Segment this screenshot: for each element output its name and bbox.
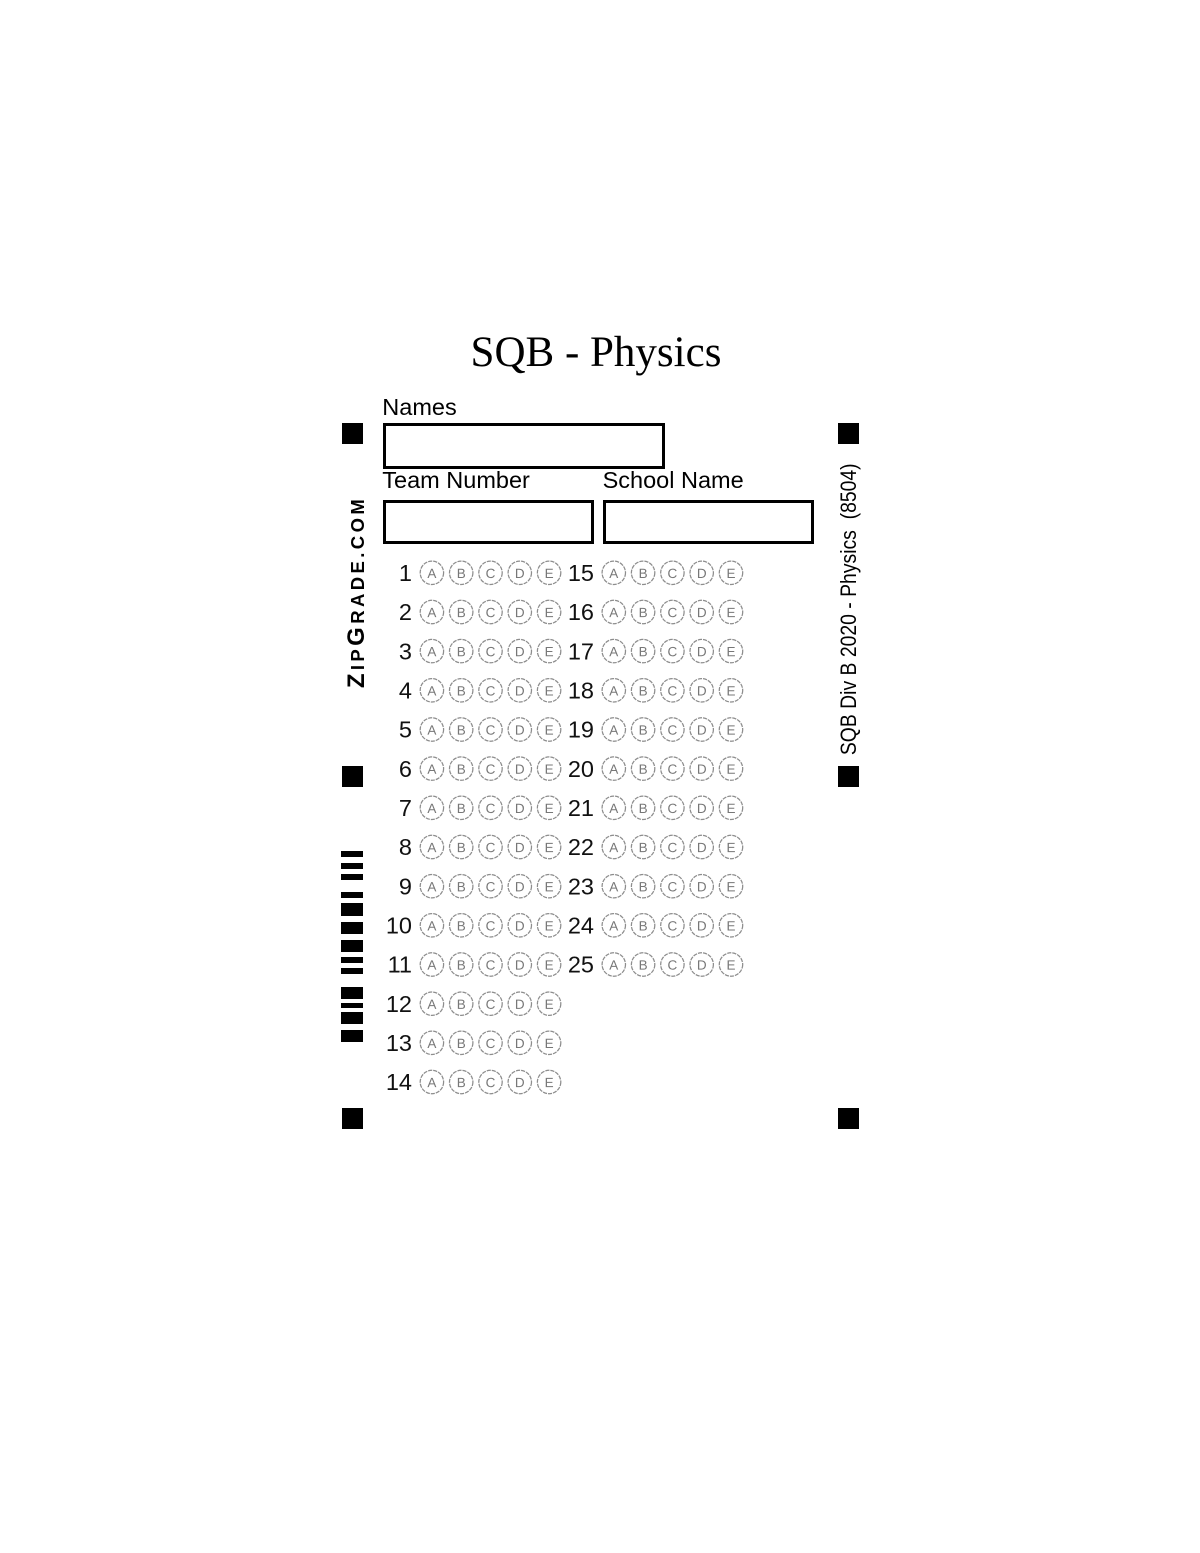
svg-text:B: B [457, 1036, 466, 1051]
svg-text:C: C [486, 762, 496, 777]
svg-text:C: C [668, 801, 678, 816]
svg-text:D: D [697, 723, 707, 738]
svg-text:C: C [486, 918, 496, 933]
svg-text:19: 19 [568, 717, 594, 743]
svg-text:A: A [609, 918, 618, 933]
svg-text:D: D [697, 879, 707, 894]
svg-text:C: C [668, 683, 678, 698]
svg-text:E: E [545, 644, 554, 659]
svg-text:14: 14 [386, 1069, 412, 1095]
svg-text:C: C [668, 762, 678, 777]
svg-text:B: B [639, 879, 648, 894]
svg-text:E: E [545, 958, 554, 973]
svg-text:D: D [515, 723, 525, 738]
svg-text:B: B [457, 879, 466, 894]
svg-text:17: 17 [568, 638, 594, 664]
svg-text:D: D [515, 840, 525, 855]
svg-text:E: E [545, 997, 554, 1012]
svg-text:E: E [726, 683, 735, 698]
svg-text:B: B [639, 958, 648, 973]
svg-text:A: A [427, 762, 436, 777]
svg-text:E: E [726, 566, 735, 581]
svg-text:C: C [486, 1075, 496, 1090]
svg-text:6: 6 [399, 756, 412, 782]
svg-text:2: 2 [399, 599, 412, 625]
svg-text:A: A [609, 879, 618, 894]
svg-text:B: B [457, 644, 466, 659]
svg-text:E: E [726, 605, 735, 620]
svg-text:8: 8 [399, 834, 412, 860]
svg-text:11: 11 [388, 952, 412, 978]
svg-text:B: B [639, 918, 648, 933]
svg-text:B: B [457, 723, 466, 738]
svg-text:10: 10 [386, 913, 412, 939]
svg-text:D: D [697, 958, 707, 973]
svg-text:E: E [545, 840, 554, 855]
svg-text:B: B [457, 801, 466, 816]
svg-text:E: E [545, 801, 554, 816]
svg-text:4: 4 [399, 678, 412, 704]
svg-text:E: E [726, 762, 735, 777]
svg-text:E: E [726, 918, 735, 933]
svg-text:20: 20 [568, 756, 594, 782]
svg-text:D: D [515, 644, 525, 659]
svg-text:D: D [515, 605, 525, 620]
svg-text:E: E [545, 1075, 554, 1090]
svg-text:D: D [515, 879, 525, 894]
svg-text:A: A [427, 644, 436, 659]
svg-text:A: A [427, 1036, 436, 1051]
svg-text:C: C [486, 879, 496, 894]
svg-text:C: C [668, 605, 678, 620]
svg-text:E: E [545, 723, 554, 738]
svg-text:A: A [427, 605, 436, 620]
svg-text:D: D [697, 840, 707, 855]
svg-text:D: D [515, 801, 525, 816]
svg-text:E: E [726, 801, 735, 816]
svg-text:D: D [697, 762, 707, 777]
svg-text:B: B [457, 1075, 466, 1090]
svg-text:D: D [697, 566, 707, 581]
svg-text:E: E [545, 1036, 554, 1051]
svg-text:C: C [486, 723, 496, 738]
svg-text:D: D [515, 566, 525, 581]
svg-text:D: D [515, 683, 525, 698]
svg-text:A: A [427, 997, 436, 1012]
svg-text:A: A [609, 683, 618, 698]
svg-text:B: B [639, 801, 648, 816]
svg-text:D: D [697, 683, 707, 698]
svg-text:D: D [697, 605, 707, 620]
svg-text:E: E [726, 958, 735, 973]
svg-text:A: A [427, 958, 436, 973]
svg-text:C: C [486, 683, 496, 698]
svg-text:3: 3 [399, 638, 412, 664]
svg-text:B: B [457, 840, 466, 855]
svg-text:C: C [668, 958, 678, 973]
svg-text:A: A [427, 683, 436, 698]
svg-text:18: 18 [568, 678, 594, 704]
svg-text:C: C [486, 566, 496, 581]
svg-text:A: A [427, 918, 436, 933]
svg-text:A: A [427, 801, 436, 816]
svg-text:16: 16 [568, 599, 594, 625]
svg-text:A: A [427, 1075, 436, 1090]
svg-text:B: B [639, 644, 648, 659]
svg-text:7: 7 [399, 795, 412, 821]
svg-text:E: E [545, 762, 554, 777]
svg-text:E: E [545, 566, 554, 581]
svg-text:E: E [545, 879, 554, 894]
svg-text:C: C [668, 879, 678, 894]
svg-text:A: A [427, 566, 436, 581]
svg-text:B: B [639, 723, 648, 738]
svg-text:C: C [486, 1036, 496, 1051]
svg-text:C: C [668, 723, 678, 738]
svg-text:25: 25 [568, 952, 594, 978]
svg-text:B: B [457, 762, 466, 777]
svg-text:B: B [457, 605, 466, 620]
svg-text:A: A [427, 879, 436, 894]
svg-text:B: B [639, 762, 648, 777]
svg-text:1: 1 [399, 560, 412, 586]
svg-text:E: E [545, 918, 554, 933]
svg-text:A: A [609, 762, 618, 777]
svg-text:B: B [639, 605, 648, 620]
svg-text:23: 23 [568, 873, 594, 899]
svg-text:C: C [668, 840, 678, 855]
svg-text:B: B [639, 566, 648, 581]
svg-text:C: C [486, 801, 496, 816]
svg-text:C: C [486, 997, 496, 1012]
svg-text:D: D [697, 918, 707, 933]
svg-text:E: E [726, 879, 735, 894]
svg-text:C: C [668, 918, 678, 933]
svg-text:C: C [668, 566, 678, 581]
svg-text:B: B [457, 918, 466, 933]
svg-text:A: A [427, 840, 436, 855]
svg-text:9: 9 [399, 873, 412, 899]
svg-text:A: A [609, 723, 618, 738]
svg-text:D: D [697, 644, 707, 659]
svg-text:C: C [486, 605, 496, 620]
svg-text:D: D [515, 1036, 525, 1051]
svg-text:E: E [545, 605, 554, 620]
svg-text:B: B [639, 683, 648, 698]
svg-text:D: D [515, 762, 525, 777]
svg-text:B: B [457, 997, 466, 1012]
svg-text:E: E [726, 644, 735, 659]
svg-text:A: A [427, 723, 436, 738]
svg-text:15: 15 [568, 560, 594, 586]
svg-text:D: D [515, 918, 525, 933]
svg-text:A: A [609, 958, 618, 973]
svg-text:E: E [726, 723, 735, 738]
svg-text:21: 21 [568, 795, 594, 821]
svg-text:C: C [486, 958, 496, 973]
svg-text:C: C [486, 840, 496, 855]
svg-text:E: E [726, 840, 735, 855]
svg-text:A: A [609, 605, 618, 620]
svg-text:A: A [609, 840, 618, 855]
svg-text:D: D [515, 997, 525, 1012]
svg-text:D: D [515, 958, 525, 973]
svg-text:12: 12 [386, 991, 412, 1017]
svg-text:D: D [515, 1075, 525, 1090]
svg-text:A: A [609, 644, 618, 659]
svg-text:B: B [457, 683, 466, 698]
svg-text:B: B [457, 566, 466, 581]
svg-text:A: A [609, 566, 618, 581]
svg-text:B: B [457, 958, 466, 973]
svg-text:E: E [545, 683, 554, 698]
svg-text:13: 13 [386, 1030, 412, 1056]
svg-text:A: A [609, 801, 618, 816]
svg-text:C: C [668, 644, 678, 659]
svg-text:B: B [639, 840, 648, 855]
svg-text:5: 5 [399, 717, 412, 743]
svg-text:24: 24 [568, 913, 594, 939]
svg-text:D: D [697, 801, 707, 816]
svg-text:22: 22 [568, 834, 594, 860]
svg-text:C: C [486, 644, 496, 659]
